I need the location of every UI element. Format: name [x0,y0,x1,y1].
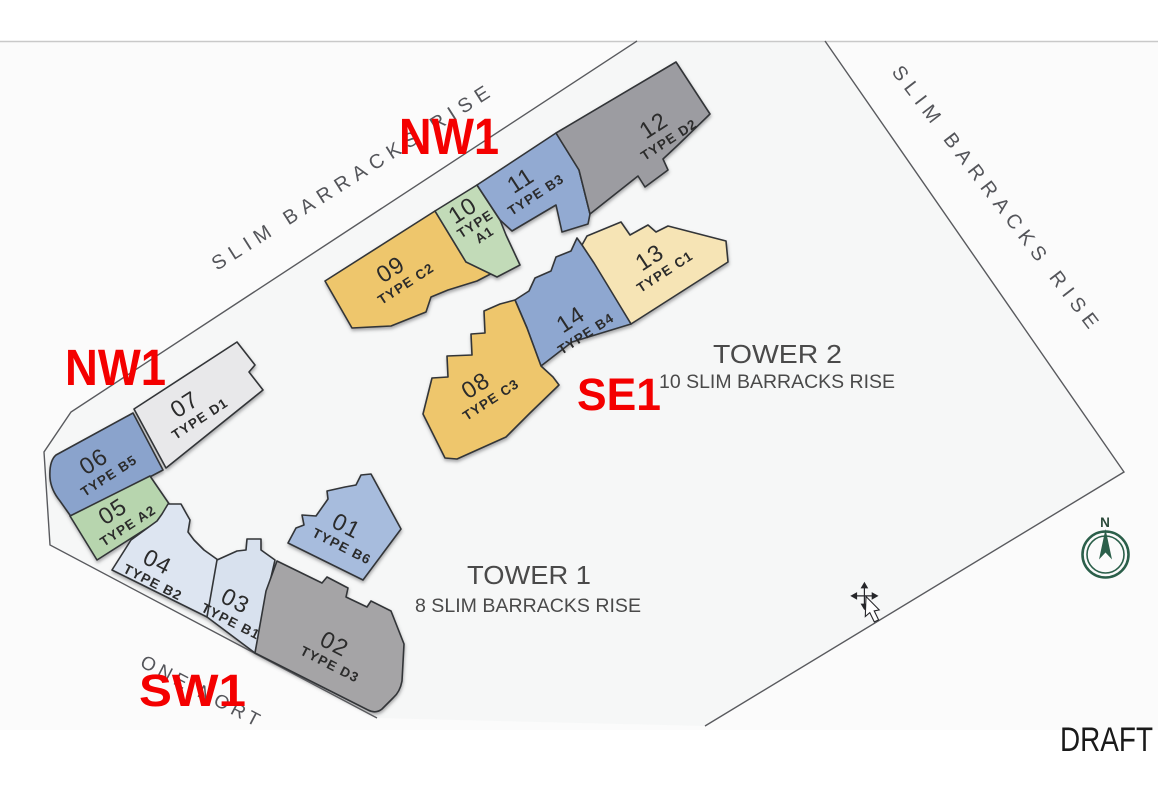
svg-text:SE1: SE1 [577,369,661,420]
svg-text:8 SLIM BARRACKS RISE: 8 SLIM BARRACKS RISE [415,595,641,617]
svg-text:TOWER 1: TOWER 1 [467,560,591,590]
svg-text:NW1: NW1 [65,339,166,396]
svg-text:TOWER 2: TOWER 2 [713,339,842,369]
svg-text:N: N [1100,515,1111,530]
svg-text:10 SLIM BARRACKS RISE: 10 SLIM BARRACKS RISE [659,371,895,393]
svg-text:SW1: SW1 [139,665,246,716]
svg-text:DRAFT: DRAFT [1060,721,1153,759]
svg-text:NW1: NW1 [399,108,499,165]
